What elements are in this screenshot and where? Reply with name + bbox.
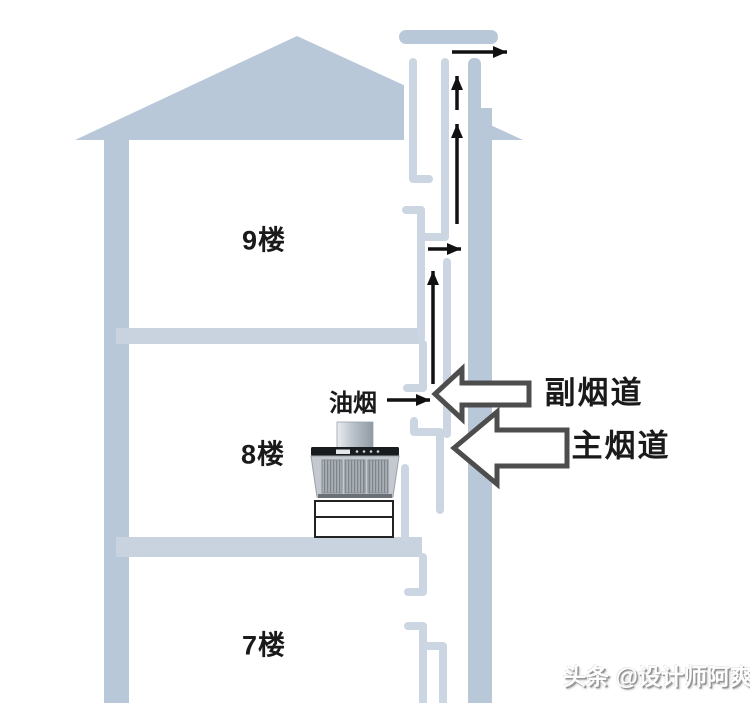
main-flue-label: 主烟道 — [572, 431, 671, 462]
hood-control-panel — [311, 447, 399, 456]
building-illustration — [0, 0, 750, 703]
secondary-flue-label: 副烟道 — [545, 378, 644, 409]
duct-wall-left-9f — [406, 210, 421, 338]
floor-label-8: 8楼 — [241, 442, 285, 469]
range-hood-image — [311, 422, 399, 498]
hood-bottom-edge — [318, 494, 392, 498]
fume-label: 油烟 — [329, 392, 377, 416]
floor-slab-9-8 — [116, 328, 421, 344]
left-wall — [104, 140, 129, 703]
flue-cap — [399, 30, 498, 44]
duct-inner-walls — [405, 62, 447, 703]
duct-wall-jog-7f — [408, 626, 423, 703]
hood-filter-panel — [345, 460, 365, 493]
hood-filter-panel — [368, 460, 388, 493]
duct-wall-jog-8f — [414, 421, 440, 510]
flue-diagram: 9楼 8楼 7楼 油烟 副烟道 主烟道 头条 @设计师阿爽 — [0, 0, 750, 703]
floor-label-9: 9楼 — [242, 228, 286, 255]
kitchen-counter — [315, 501, 393, 537]
floor-label-7: 7楼 — [242, 633, 286, 660]
duct-wall-left-8f — [407, 344, 423, 388]
floor-slab-8-7 — [116, 537, 422, 557]
hood-filter-panel — [322, 460, 342, 493]
hood-display — [336, 450, 350, 455]
watermark: 头条 @设计师阿爽 — [563, 666, 750, 689]
duct-wall-left-7f — [408, 557, 423, 592]
hood-chimney — [337, 422, 373, 448]
